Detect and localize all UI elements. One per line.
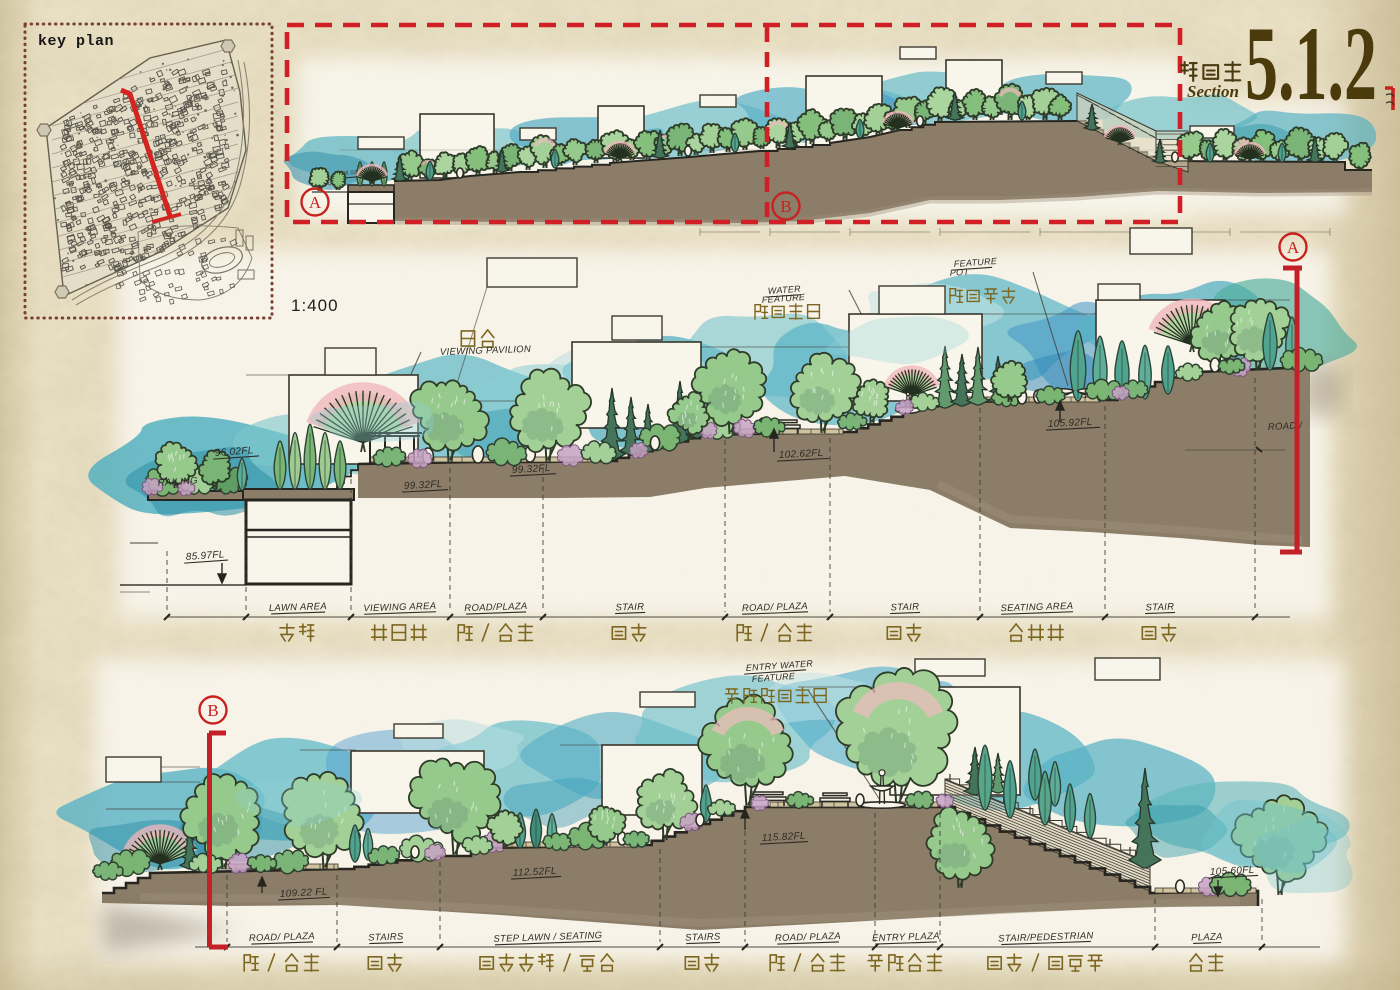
svg-text:A: A xyxy=(309,193,322,212)
svg-text:STAIRS: STAIRS xyxy=(685,931,721,943)
svg-text:POT: POT xyxy=(949,267,970,278)
svg-text:STAIR: STAIR xyxy=(890,602,919,614)
svg-text:B: B xyxy=(780,197,791,216)
svg-text:STAIRS: STAIRS xyxy=(368,931,404,943)
svg-text:STAIR: STAIR xyxy=(1145,602,1174,614)
svg-text:A: A xyxy=(1287,238,1300,257)
svg-text:Section: Section xyxy=(1187,82,1239,101)
svg-text:PLAZA: PLAZA xyxy=(1191,931,1223,943)
svg-text:B: B xyxy=(207,701,218,720)
svg-text:STAIR: STAIR xyxy=(615,602,644,614)
svg-text:1:400: 1:400 xyxy=(291,296,339,315)
svg-text:5.1.2: 5.1.2 xyxy=(1245,5,1377,122)
svg-text:key plan: key plan xyxy=(38,33,114,50)
